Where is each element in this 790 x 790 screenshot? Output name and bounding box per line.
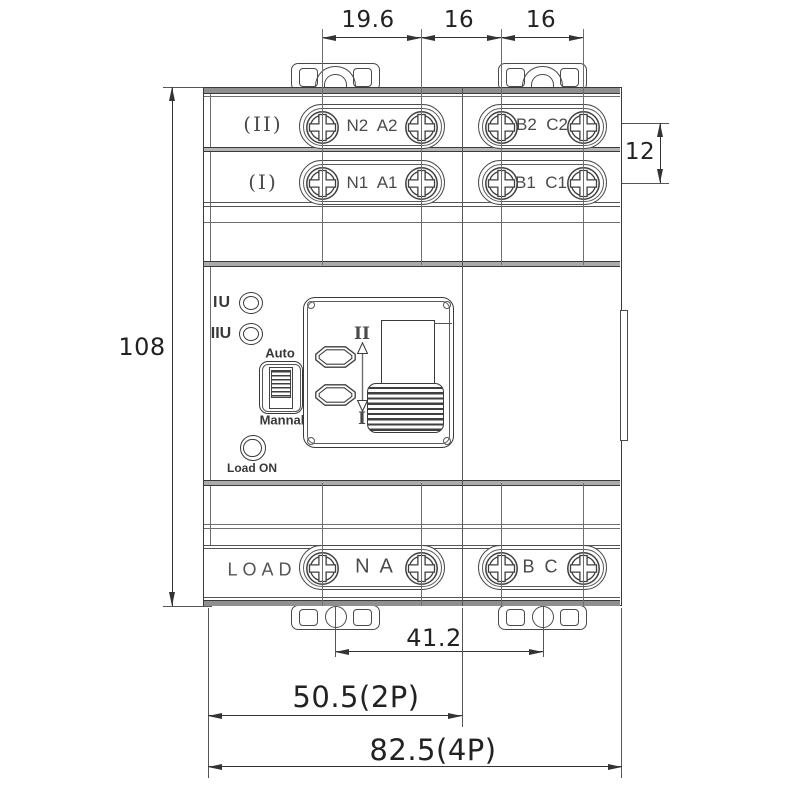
panel-corner-screw-icon (307, 437, 315, 445)
row2-terminals-right-label: B2 C2 (516, 115, 568, 135)
load-terminals-right-label: B C (522, 557, 557, 578)
mode-toggle-switch[interactable] (259, 361, 303, 414)
din-tab-hole-icon (506, 609, 525, 626)
din-tab-hole-icon (560, 609, 579, 626)
band-line (204, 597, 620, 598)
load-on-indicator-icon (240, 435, 266, 461)
hex-recess-icon (315, 346, 356, 368)
extension-line (501, 29, 502, 265)
dim-text-108: 108 (118, 333, 165, 361)
pole-seam-line (501, 483, 502, 606)
dim-line-50-5 (208, 715, 462, 716)
row1-label: (I) (248, 170, 278, 194)
dim-line-12 (660, 123, 661, 183)
face-bottom-edge (204, 480, 620, 486)
position-ii-label: II (354, 324, 370, 344)
din-tab-hole-icon (299, 609, 318, 626)
extension-line (462, 608, 463, 727)
auto-label: Auto (265, 346, 295, 361)
dim-line-16a (421, 37, 501, 38)
module-seam-line (462, 87, 463, 606)
band-line (204, 524, 620, 525)
switch-handle-lever[interactable] (381, 320, 435, 385)
led2-label: IIU (211, 325, 231, 343)
dim-line-108 (172, 87, 173, 606)
position-i-label: I (358, 409, 366, 429)
face-top-edge (204, 261, 620, 267)
pole-seam-line (322, 483, 323, 606)
switch-handle-knob[interactable] (367, 383, 444, 433)
din-tab-hole-icon (353, 609, 372, 626)
dim-text-16b: 16 (526, 7, 556, 33)
handle-step-line (434, 323, 452, 324)
panel-corner-screw-icon (443, 301, 451, 309)
pole-seam-line (421, 483, 422, 606)
row1-terminals-right-label: B1 C1 (515, 173, 567, 193)
load-on-label: Load ON (227, 461, 277, 475)
led1-indicator-icon (239, 292, 263, 314)
extension-line (621, 608, 622, 778)
band-line (204, 528, 620, 529)
dim-text-41-2: 41.2 (406, 624, 461, 652)
din-tab-arch-icon (531, 74, 554, 88)
mode-toggle-slider[interactable] (271, 370, 291, 398)
top-cap-band (204, 88, 620, 94)
pole-seam-line (583, 483, 584, 606)
bottom-cap-band (204, 600, 620, 606)
extension-line (335, 607, 336, 657)
din-tab-arch-icon (324, 74, 347, 88)
load-label: LOAD (227, 560, 296, 581)
load-terminals-left-label: N A (355, 556, 393, 579)
manual-label: Mannal (260, 413, 305, 428)
panel-corner-screw-icon (307, 301, 315, 309)
dim-line-19-6 (322, 37, 421, 38)
band-line (204, 96, 620, 97)
band-line (204, 222, 620, 223)
dim-text-82-5: 82.5(4P) (369, 733, 496, 767)
hex-recess-icon (315, 384, 356, 406)
row2-terminals-left-label: N2 A2 (346, 116, 397, 136)
extension-line (421, 29, 422, 265)
dim-line-16b (501, 37, 583, 38)
extension-line (322, 29, 323, 265)
body-left-lip-line (210, 92, 211, 546)
side-clip-tab (620, 310, 628, 441)
dim-text-50-5: 50.5(2P) (292, 680, 419, 714)
panel-corner-screw-icon (443, 437, 451, 445)
extension-line (543, 607, 544, 657)
led2-indicator-icon (239, 323, 263, 345)
extension-line (583, 29, 584, 265)
led1-label: IU (213, 294, 231, 312)
dim-text-19-6: 19.6 (341, 7, 394, 33)
drawing-canvas: (II) (I) N2 A2 B2 C2 N1 A1 B1 C1 LOAD N … (0, 0, 790, 790)
row1-terminals-left-label: N1 A1 (346, 173, 397, 193)
dim-text-16a: 16 (444, 7, 474, 33)
dim-text-12: 12 (625, 139, 655, 165)
extension-line (208, 608, 209, 778)
row2-label: (II) (243, 112, 282, 136)
